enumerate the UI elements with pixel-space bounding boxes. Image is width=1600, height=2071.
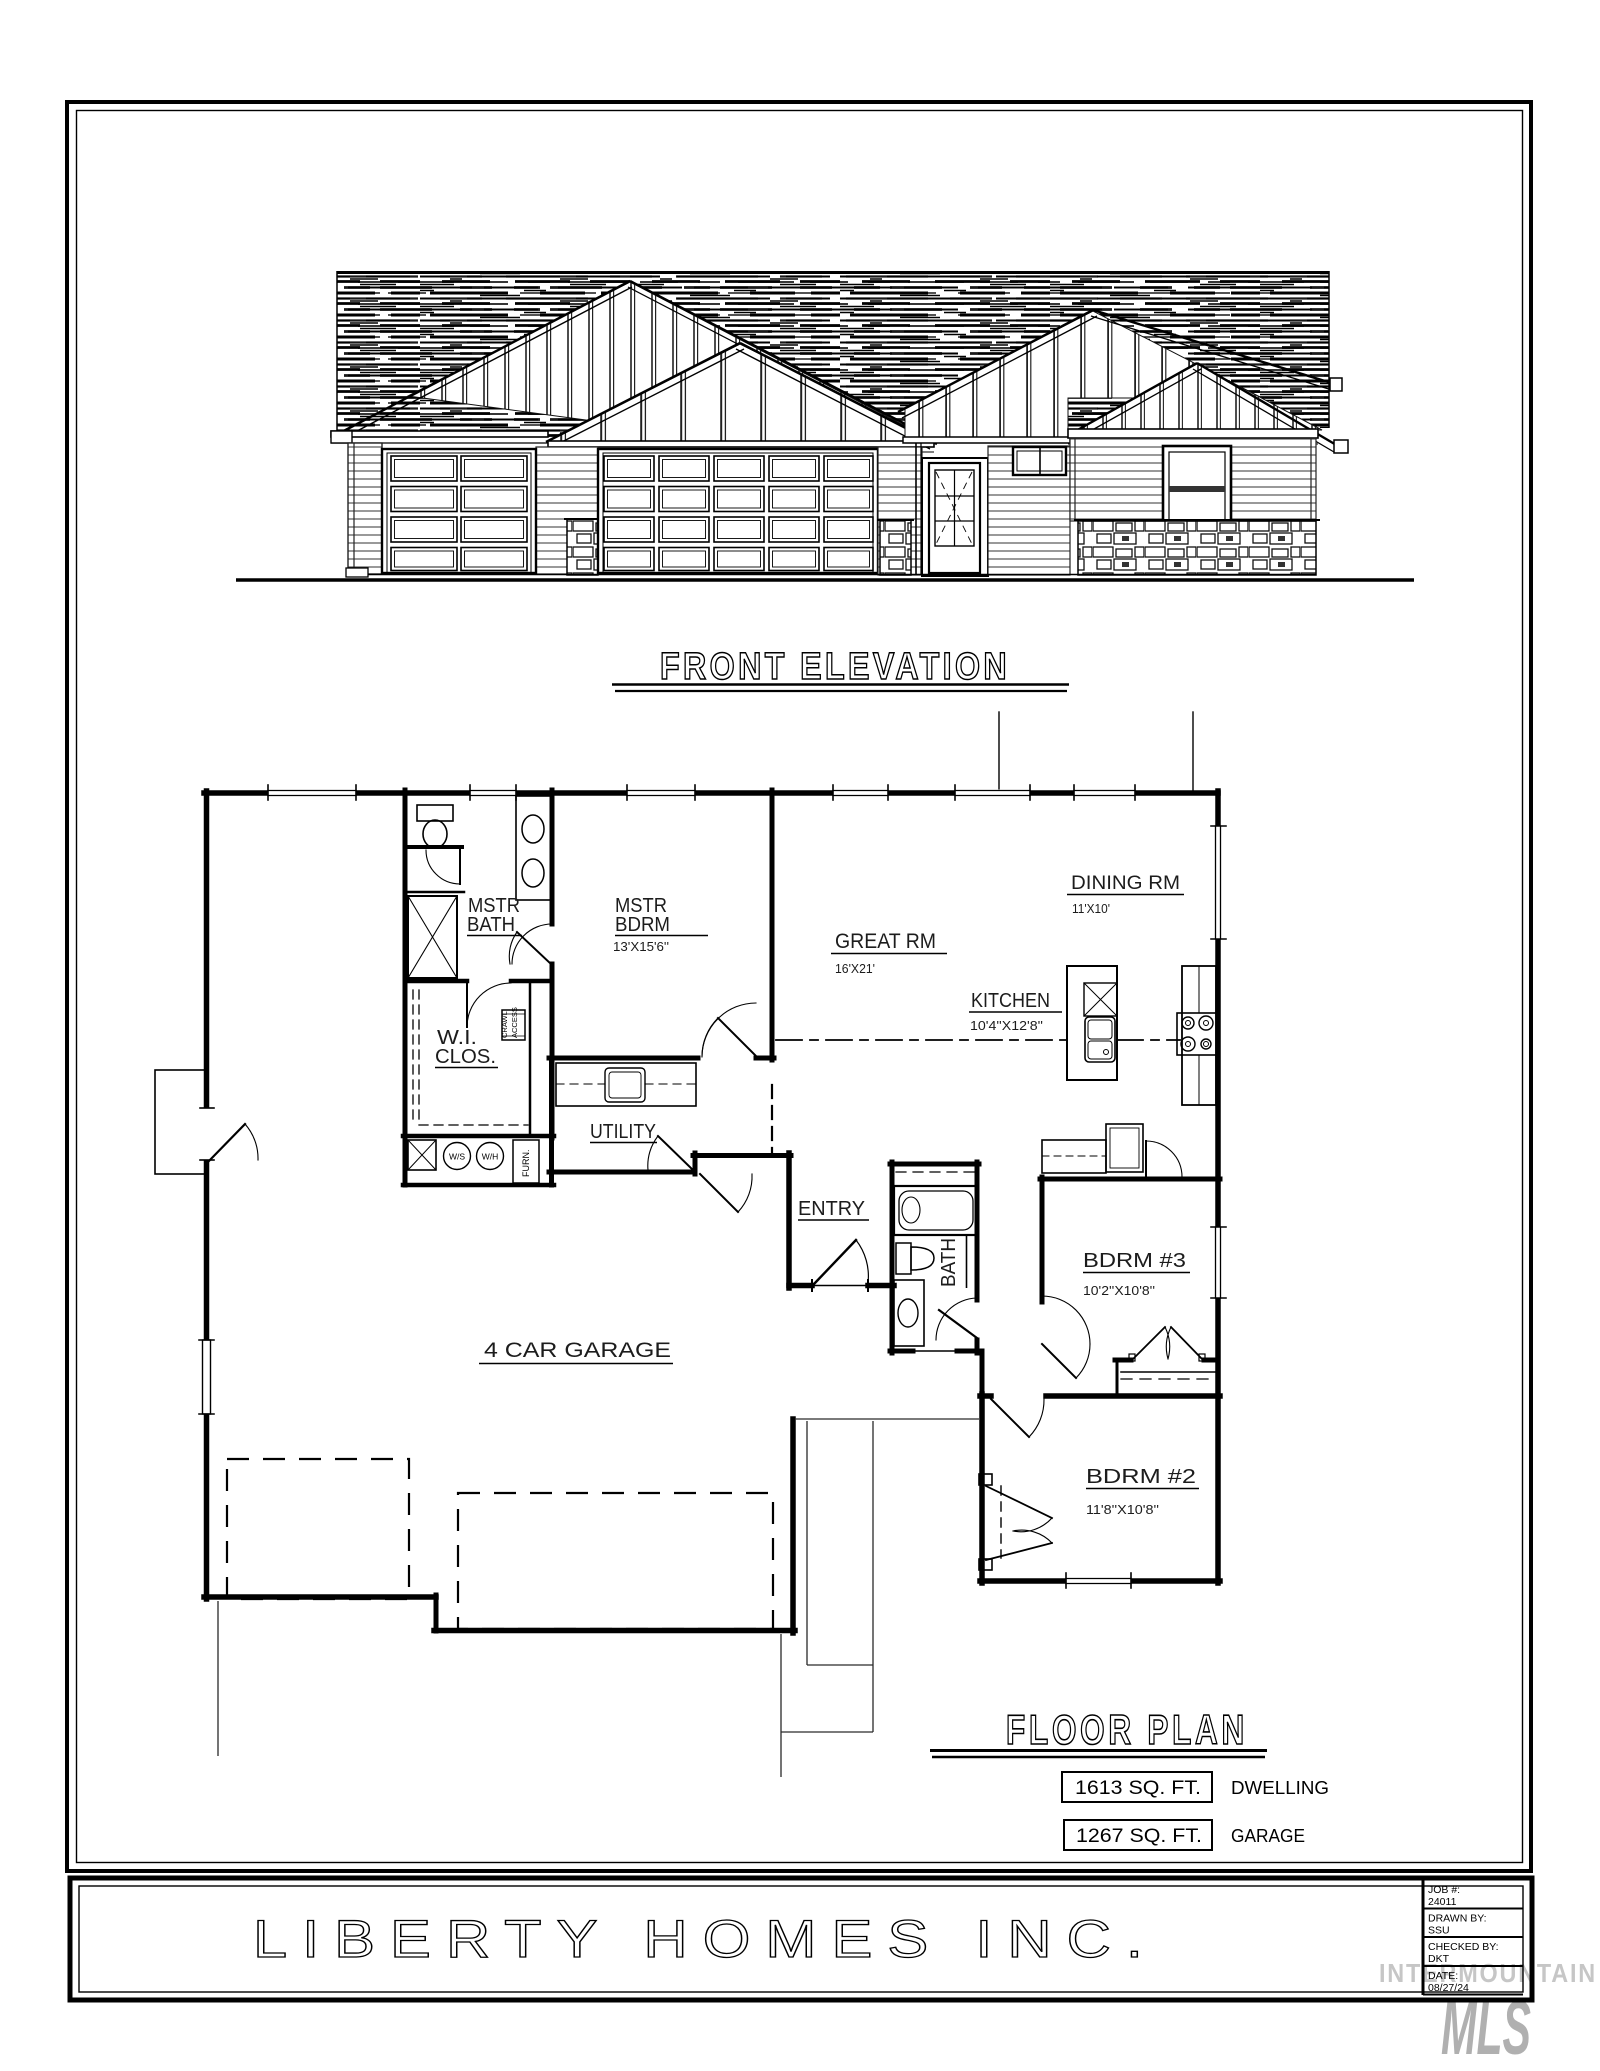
svg-text:KITCHEN: KITCHEN [971,990,1050,1012]
svg-text:BDRM #3: BDRM #3 [1083,1250,1186,1272]
svg-text:MLS: MLS [1441,1986,1531,2071]
svg-text:W/H: W/H [482,1152,499,1162]
svg-text:DRAWN BY:: DRAWN BY: [1428,1913,1487,1925]
svg-text:BDRM #2: BDRM #2 [1086,1466,1196,1488]
svg-text:DWELLING: DWELLING [1231,1778,1329,1798]
svg-text:ACCESS: ACCESS [510,1007,519,1038]
svg-text:DINING RM: DINING RM [1071,873,1180,894]
svg-text:11'X10': 11'X10' [1072,902,1110,916]
svg-text:SSU: SSU [1428,1925,1450,1937]
svg-text:JOB #:: JOB #: [1428,1884,1460,1896]
svg-text:UTILITY: UTILITY [590,1121,656,1143]
svg-text:CHECKED BY:: CHECKED BY: [1428,1941,1499,1953]
svg-text:GARAGE: GARAGE [1231,1826,1305,1846]
svg-text:10'2''X10'8'': 10'2''X10'8'' [1083,1283,1155,1298]
svg-text:W/S: W/S [449,1152,465,1162]
svg-text:BDRM: BDRM [615,914,670,936]
svg-text:LIBERTY HOMES INC.: LIBERTY HOMES INC. [253,1910,1158,1969]
svg-text:ENTRY: ENTRY [798,1198,865,1220]
svg-text:4 CAR GARAGE: 4 CAR GARAGE [484,1339,671,1362]
svg-text:FRONT ELEVATION: FRONT ELEVATION [660,646,1010,688]
svg-text:11'8''X10'8'': 11'8''X10'8'' [1086,1502,1159,1517]
svg-text:BATH: BATH [467,914,515,936]
svg-text:CLOS.: CLOS. [435,1046,496,1068]
svg-text:GREAT RM: GREAT RM [835,930,936,953]
svg-text:16'X21': 16'X21' [835,961,875,976]
svg-text:FURN.: FURN. [521,1150,531,1178]
svg-text:1267 SQ. FT.: 1267 SQ. FT. [1076,1826,1202,1847]
svg-text:13'X15'6'': 13'X15'6'' [613,939,669,954]
svg-text:CRAWL: CRAWL [500,1011,509,1038]
svg-text:BATH: BATH [938,1238,960,1287]
svg-text:INTERMOUNTAIN: INTERMOUNTAIN [1379,1958,1597,1988]
svg-text:FLOOR PLAN: FLOOR PLAN [1006,1706,1248,1753]
svg-text:24011: 24011 [1428,1896,1457,1908]
svg-text:1613 SQ. FT.: 1613 SQ. FT. [1075,1778,1201,1799]
svg-text:10'4''X12'8'': 10'4''X12'8'' [970,1018,1043,1033]
